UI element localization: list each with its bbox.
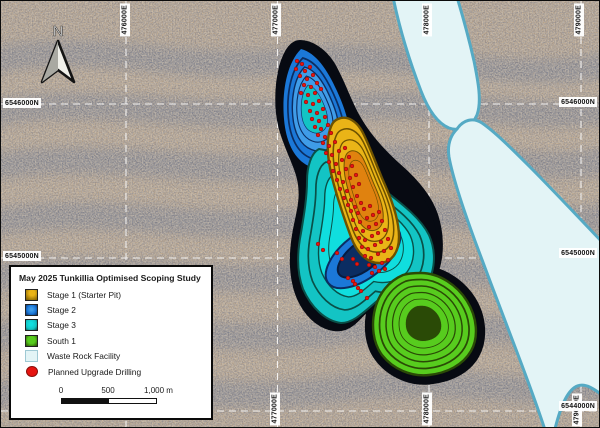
scale-label-1000: 1,000 m bbox=[144, 386, 173, 395]
legend-item-label: Stage 2 bbox=[47, 305, 76, 315]
grid-label-northing: 6545000N bbox=[3, 251, 41, 261]
stage2-swatch bbox=[25, 304, 38, 316]
waste-rock-swatch bbox=[25, 350, 38, 362]
grid-label-easting: 478000E bbox=[422, 3, 432, 36]
grid-label-easting: 477000E bbox=[271, 3, 281, 36]
grid-label-easting: 476000E bbox=[120, 3, 130, 36]
legend-item-stage3: Stage 3 bbox=[18, 318, 204, 333]
grid-label-northing: 6545000N bbox=[559, 248, 597, 258]
scale-label-500: 500 bbox=[101, 386, 114, 395]
stage1-swatch bbox=[25, 289, 38, 301]
legend-item-label: Planned Upgrade Drilling bbox=[48, 367, 141, 377]
legend-item-stage1: Stage 1 (Starter Pit) bbox=[18, 287, 204, 302]
scale-bar-segments bbox=[61, 398, 157, 404]
north-arrow-label: N bbox=[53, 23, 64, 40]
legend-item-label: South 1 bbox=[47, 336, 76, 346]
legend-item-south1: South 1 bbox=[18, 333, 204, 348]
legend-item-drilling: Planned Upgrade Drilling bbox=[18, 364, 204, 379]
legend-item-label: Stage 1 (Starter Pit) bbox=[47, 290, 121, 300]
drill-point-icon bbox=[26, 366, 38, 377]
grid-label-easting: 479000E bbox=[574, 3, 584, 36]
legend-item-waste-rock: Waste Rock Facility bbox=[18, 349, 204, 364]
scale-label-0: 0 bbox=[59, 386, 63, 395]
map-canvas: N 476000E 477000E 478000E 479000E 477000… bbox=[0, 0, 600, 428]
legend-item-label: Waste Rock Facility bbox=[47, 351, 120, 361]
grid-label-northing: 6546000N bbox=[3, 98, 41, 108]
south1-swatch bbox=[25, 335, 38, 347]
legend-title: May 2025 Tunkillia Optimised Scoping Stu… bbox=[19, 273, 204, 283]
grid-label-easting: 478000E bbox=[422, 392, 432, 425]
grid-label-easting: 477000E bbox=[270, 392, 280, 425]
stage3-swatch bbox=[25, 319, 38, 331]
legend: May 2025 Tunkillia Optimised Scoping Stu… bbox=[9, 265, 213, 420]
legend-item-stage2: Stage 2 bbox=[18, 302, 204, 317]
grid-label-northing: 6546000N bbox=[559, 97, 597, 107]
scale-bar: 0 500 1,000 m bbox=[61, 386, 211, 408]
legend-item-label: Stage 3 bbox=[47, 320, 76, 330]
grid-label-northing: 6544000N bbox=[559, 401, 597, 411]
